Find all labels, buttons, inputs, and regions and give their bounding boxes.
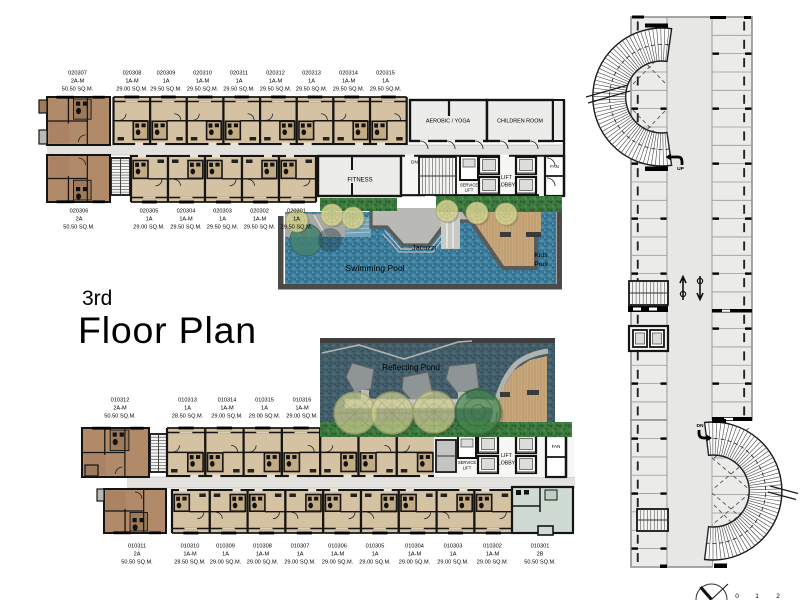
svg-text:2A: 2A	[76, 217, 83, 223]
svg-text:010305: 010305	[366, 544, 385, 550]
svg-text:1A-M: 1A-M	[183, 552, 197, 558]
svg-text:29.50 SQ.M.: 29.50 SQ.M.	[244, 225, 276, 231]
svg-text:1A-M: 1A-M	[486, 552, 500, 558]
svg-text:010308: 010308	[253, 544, 272, 550]
svg-text:020310: 020310	[193, 71, 212, 77]
svg-text:50.50 SQ.M.: 50.50 SQ.M.	[121, 560, 153, 566]
svg-text:1: 1	[755, 593, 759, 600]
svg-text:LIFT: LIFT	[501, 175, 512, 181]
svg-text:020304: 020304	[177, 209, 196, 215]
svg-text:29.50 SQ.M.: 29.50 SQ.M.	[296, 87, 328, 93]
svg-text:1A-M: 1A-M	[220, 406, 234, 412]
svg-text:2A: 2A	[134, 552, 141, 558]
svg-text:29.50 SQ.M.: 29.50 SQ.M.	[150, 87, 182, 93]
svg-text:010311: 010311	[128, 544, 146, 550]
svg-text:29.00 SQ.M.: 29.00 SQ.M.	[210, 560, 242, 566]
svg-text:50.50 SQ.M.: 50.50 SQ.M.	[63, 225, 95, 231]
svg-text:50.50 SQ.M.: 50.50 SQ.M.	[524, 560, 556, 566]
svg-text:1A-M: 1A-M	[331, 552, 345, 558]
svg-text:010302: 010302	[483, 544, 502, 550]
svg-text:020313: 020313	[302, 71, 321, 77]
svg-text:1A: 1A	[308, 79, 315, 85]
svg-text:DN: DN	[696, 423, 704, 429]
svg-text:1A: 1A	[293, 217, 300, 223]
svg-text:29.00 SQ.M.: 29.00 SQ.M.	[359, 560, 391, 566]
svg-text:010314: 010314	[218, 398, 237, 404]
svg-text:AEROBIC / YOGA: AEROBIC / YOGA	[426, 119, 471, 125]
svg-text:LIFT: LIFT	[463, 466, 472, 471]
svg-text:020306: 020306	[70, 209, 89, 215]
svg-text:010315: 010315	[255, 398, 274, 404]
svg-text:1A: 1A	[297, 552, 304, 558]
svg-text:29.50 SQ.M.: 29.50 SQ.M.	[333, 87, 365, 93]
svg-text:1A-M: 1A-M	[253, 217, 267, 223]
svg-text:020309: 020309	[157, 71, 176, 77]
svg-text:29.00 SQ.M.: 29.00 SQ.M.	[133, 225, 165, 231]
svg-text:29.50 SQ.M.: 29.50 SQ.M.	[207, 225, 239, 231]
svg-text:1A-M: 1A-M	[342, 79, 356, 85]
svg-text:010313: 010313	[178, 398, 197, 404]
svg-text:LOBBY: LOBBY	[498, 461, 516, 467]
svg-text:Swimming Pool: Swimming Pool	[345, 263, 404, 273]
svg-text:1A-M: 1A-M	[269, 79, 283, 85]
svg-text:29.00 SQ.M.: 29.00 SQ.M.	[116, 87, 148, 93]
svg-text:Reflecting Pond: Reflecting Pond	[382, 363, 440, 372]
svg-text:020312: 020312	[266, 71, 285, 77]
svg-text:FAN: FAN	[552, 444, 561, 449]
svg-text:010301: 010301	[531, 544, 550, 550]
svg-text:020307: 020307	[68, 71, 87, 77]
svg-text:29.00 SQ.M.: 29.00 SQ.M.	[437, 560, 469, 566]
svg-text:1A: 1A	[261, 406, 268, 412]
svg-text:50.50 SQ.M.: 50.50 SQ.M.	[104, 414, 136, 420]
svg-text:29.00 SQ.M.: 29.00 SQ.M.	[284, 560, 316, 566]
svg-text:020303: 020303	[213, 209, 232, 215]
svg-text:FAN: FAN	[550, 164, 559, 169]
svg-text:1A: 1A	[146, 217, 153, 223]
svg-text:1A-M: 1A-M	[125, 79, 139, 85]
svg-text:020302: 020302	[250, 209, 269, 215]
svg-text:Pool: Pool	[534, 261, 548, 268]
svg-text:0: 0	[735, 593, 739, 600]
svg-text:Kids: Kids	[534, 252, 548, 259]
svg-text:020301: 020301	[287, 209, 306, 215]
svg-text:020314: 020314	[339, 71, 358, 77]
svg-text:010306: 010306	[328, 544, 347, 550]
svg-text:29.00 SQ.M.: 29.00 SQ.M.	[247, 560, 279, 566]
svg-text:29.50 SQ.M.: 29.50 SQ.M.	[170, 225, 202, 231]
svg-text:020305: 020305	[140, 209, 159, 215]
svg-text:DN: DN	[411, 160, 418, 166]
svg-text:1A: 1A	[163, 79, 170, 85]
svg-text:1A-M: 1A-M	[179, 217, 193, 223]
svg-text:1A-M: 1A-M	[295, 406, 309, 412]
svg-text:010312: 010312	[111, 398, 130, 404]
svg-text:1A-M: 1A-M	[196, 79, 210, 85]
svg-text:LOBBY: LOBBY	[498, 183, 516, 189]
svg-text:LIFT: LIFT	[465, 188, 474, 193]
svg-text:1A: 1A	[222, 552, 229, 558]
svg-text:1A: 1A	[219, 217, 226, 223]
svg-text:29.00 SQ.M.: 29.00 SQ.M.	[322, 560, 354, 566]
svg-text:Floor Plan: Floor Plan	[78, 309, 257, 351]
svg-text:FITNESS: FITNESS	[347, 178, 372, 184]
svg-text:010303: 010303	[444, 544, 463, 550]
svg-text:29.00 SQ.M.: 29.00 SQ.M.	[477, 560, 509, 566]
svg-text:1A: 1A	[450, 552, 457, 558]
svg-text:2A-M: 2A-M	[71, 79, 85, 85]
svg-text:29.50 SQ.M.: 29.50 SQ.M.	[370, 87, 402, 93]
svg-text:1A: 1A	[382, 79, 389, 85]
svg-text:Jacuzzi: Jacuzzi	[412, 243, 436, 252]
svg-text:29.50 SQ.M.: 29.50 SQ.M.	[281, 225, 313, 231]
svg-text:29.50 SQ.M.: 29.50 SQ.M.	[223, 87, 255, 93]
svg-text:29.50 SQ.M.: 29.50 SQ.M.	[187, 87, 219, 93]
svg-text:010316: 010316	[293, 398, 312, 404]
svg-text:CHILDREN ROOM: CHILDREN ROOM	[497, 119, 543, 125]
svg-text:1A: 1A	[236, 79, 243, 85]
svg-text:010304: 010304	[405, 544, 424, 550]
svg-text:UP: UP	[677, 166, 685, 172]
svg-text:1A-M: 1A-M	[256, 552, 270, 558]
svg-text:2B: 2B	[537, 552, 544, 558]
svg-text:1A-M: 1A-M	[408, 552, 422, 558]
svg-text:29.00 SQ.M.: 29.00 SQ.M.	[249, 414, 281, 420]
svg-text:2: 2	[776, 593, 780, 600]
svg-text:3rd: 3rd	[82, 287, 112, 310]
svg-text:29.00 SQ.M.: 29.00 SQ.M.	[286, 414, 318, 420]
svg-text:1A: 1A	[184, 406, 191, 412]
svg-text:29.00 SQ.M.: 29.00 SQ.M.	[211, 414, 243, 420]
svg-text:SERVICE: SERVICE	[458, 460, 477, 465]
svg-text:2A-M: 2A-M	[113, 406, 127, 412]
svg-text:010307: 010307	[291, 544, 310, 550]
svg-text:29.00 SQ.M.: 29.00 SQ.M.	[399, 560, 431, 566]
svg-text:28.50 SQ.M.: 28.50 SQ.M.	[174, 560, 206, 566]
svg-text:020311: 020311	[230, 71, 248, 77]
svg-text:010309: 010309	[216, 544, 235, 550]
svg-text:28.50 SQ.M.: 28.50 SQ.M.	[172, 414, 204, 420]
svg-text:1A: 1A	[372, 552, 379, 558]
svg-text:010310: 010310	[181, 544, 200, 550]
svg-text:LIFT: LIFT	[501, 453, 512, 459]
svg-text:020308: 020308	[123, 71, 142, 77]
svg-text:020315: 020315	[376, 71, 395, 77]
svg-text:29.50 SQ.M.: 29.50 SQ.M.	[260, 87, 292, 93]
svg-text:50.50 SQ.M.: 50.50 SQ.M.	[62, 87, 94, 93]
